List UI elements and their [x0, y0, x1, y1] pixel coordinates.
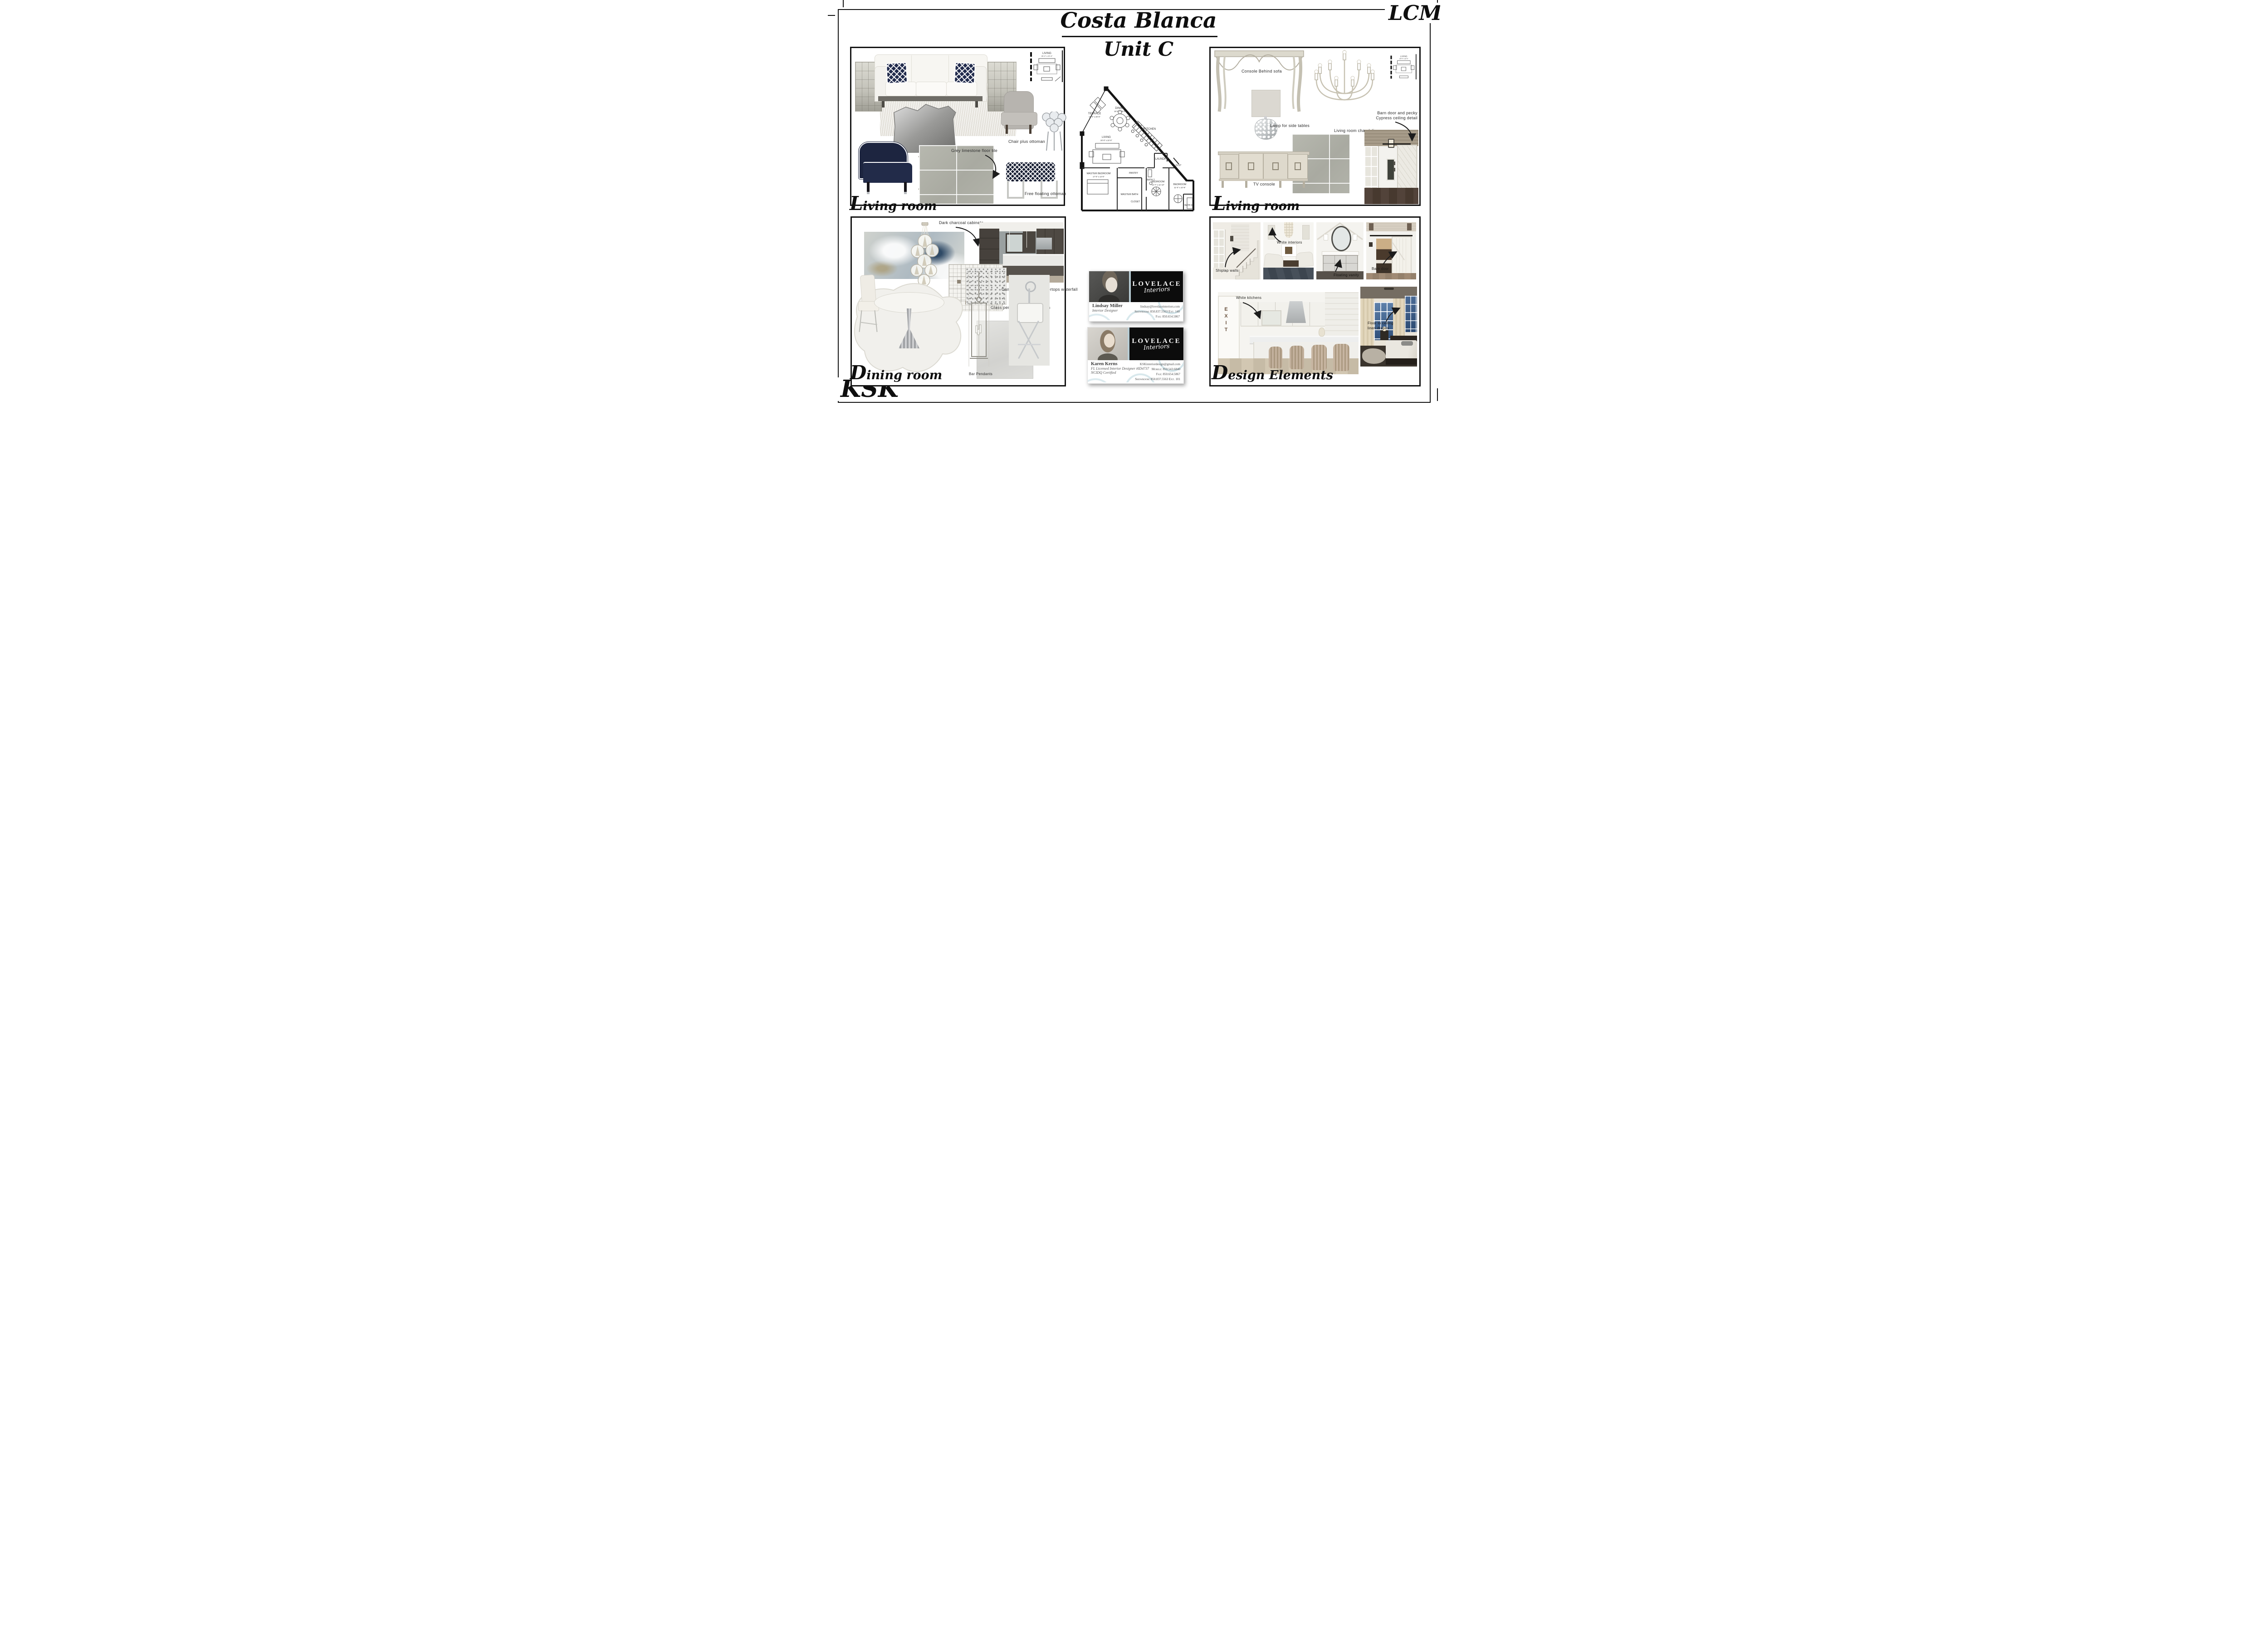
svg-text:BATH 3: BATH 3 [1184, 204, 1192, 207]
kitchen-island [1129, 121, 1163, 154]
barn-ceiling-label-1: Barn door and pecky [1367, 111, 1417, 116]
mobile-line: Mobile: 850.543.6840 [1135, 367, 1180, 372]
vanity-label: Floating vanity [1334, 273, 1359, 278]
living-room-panel-1: LIVING 20'-0" x 22'-0" Chair plus ottoma… [850, 47, 1065, 206]
ottoman-cushion [1006, 162, 1055, 181]
square-handle [1226, 162, 1232, 170]
cabinets-label: Dark charcoal cabinets [939, 220, 983, 225]
kitchens-label: White kitchens [1236, 296, 1261, 300]
card-contact: KSKinteriordesign@gmail.com Mobile: 850.… [1135, 362, 1180, 381]
console-leg [1279, 181, 1281, 188]
svg-text:20'-0" x 22'-0": 20'-0" x 22'-0" [1100, 139, 1112, 142]
square-handle [1295, 162, 1301, 170]
console-base [1219, 179, 1308, 181]
wall-art [1369, 242, 1373, 247]
mood-board-page: Costa Blanca Unit C LCM KSK [828, 0, 1440, 408]
email: KSKinteriordesign@gmail.com [1135, 362, 1180, 367]
exit-door [1218, 296, 1240, 366]
tall-window [1302, 225, 1310, 240]
footrest [1018, 344, 1041, 345]
armchair-leg [1006, 125, 1008, 134]
unit-c-floor-plan: TERRACE DINING LIVING KITCHEN LAUNDRY CL… [1078, 86, 1199, 214]
fax-line: Fax: 850.654.5867 [1134, 314, 1180, 319]
acrylic-stool-photo [1009, 275, 1050, 366]
lovelace-logo: LOVELACE Interiors [1129, 328, 1183, 360]
console-leg [1303, 181, 1305, 188]
square-handle [1248, 162, 1254, 170]
console-label: Console Behind sofa [1242, 69, 1282, 74]
navy-geometric-pillow [886, 62, 908, 84]
panel-title: Design Elements [1212, 363, 1333, 382]
barn-door-arrow [1382, 250, 1397, 266]
bolster-pillow [1401, 341, 1413, 346]
bed-frame [1386, 358, 1417, 365]
island-base [1003, 266, 1064, 276]
log-stool [1333, 344, 1349, 371]
sconce [1324, 234, 1328, 240]
svg-text:16'-0" x 18'-0": 16'-0" x 18'-0" [1114, 110, 1126, 112]
wood-floor [1366, 273, 1416, 279]
vanity-arrow [1334, 259, 1343, 273]
living-plan-thumbnail: LIVING 20'-0" x 22'-0" [1029, 49, 1064, 84]
svg-text:LAUNDRY: LAUNDRY [1155, 158, 1168, 161]
ottoman-frame-leg [1007, 181, 1024, 199]
email: lindsay@lovelaceinteriors.com [1134, 304, 1180, 309]
lamp-shade [1251, 90, 1281, 117]
ceiling-beam [1407, 223, 1412, 230]
svg-text:TERRACE: TERRACE [1088, 112, 1101, 115]
svg-text:KITCHEN: KITCHEN [1144, 128, 1156, 131]
pebble-martini-table [1040, 112, 1068, 152]
sofa-leg [882, 101, 885, 108]
crop-mark [1437, 388, 1438, 401]
linen-drapes-bedroom-photo: Floor to ceiling linen drapes [1360, 287, 1417, 367]
hide-rug [1362, 348, 1386, 364]
kitchens-arrow [1242, 301, 1261, 319]
crop-mark [828, 15, 835, 16]
svg-text:CLOSET: CLOSET [1131, 200, 1140, 203]
barn-ceiling-arrow [1394, 121, 1414, 142]
gray-armchair [1000, 91, 1044, 143]
coral-decor [1319, 328, 1325, 337]
sofa-leg [975, 101, 978, 108]
person-name: Lindsay Miller [1092, 303, 1123, 308]
ottoman-label: Free floating ottoman [1025, 191, 1066, 196]
lovelace-logo: LOVELACE Interiors [1131, 271, 1183, 302]
panel-title: Living room [1212, 194, 1300, 213]
dark-cabinet [1023, 231, 1036, 253]
portrait-photo [1088, 328, 1128, 360]
fax-line: Fax: 850.654.5867 [1135, 372, 1180, 377]
armchair-leg [1029, 125, 1031, 134]
floating-vanity-photo: Floating vanity [1316, 222, 1364, 279]
sliding-barn-door [1397, 145, 1417, 190]
design-elements-panel: Shiplap walls White interiors [1209, 216, 1421, 386]
console-leg [1222, 181, 1224, 188]
sofa-seam [911, 55, 912, 82]
chair-label: Chair plus ottoman [1008, 139, 1045, 144]
wood-coffee-table [1283, 260, 1299, 267]
pendants-label: Bar Pendants [969, 372, 992, 376]
armchair-seat [1001, 112, 1037, 126]
white-interiors-photo: White interiors [1263, 222, 1314, 279]
slate-floor [1263, 268, 1314, 279]
page-title: Costa Blanca [1057, 10, 1220, 31]
side-window [1405, 296, 1417, 332]
stool-ring [1025, 281, 1036, 292]
exit-sign: EXIT [1223, 307, 1229, 334]
business-card-karen: LOVELACE Interiors Karen Kerns FL Licens… [1087, 327, 1184, 384]
svg-text:14'-7" x 11'-10": 14'-7" x 11'-10" [1152, 184, 1164, 186]
capiz-chandelier [1284, 222, 1293, 238]
svg-text:12'-0" x 20'-0": 12'-0" x 20'-0" [1089, 116, 1100, 118]
monogram-lcm: LCM [1385, 3, 1440, 23]
sofa-seam [948, 55, 949, 82]
svg-text:11'-0" x 10'-9": 11'-0" x 10'-9" [1174, 186, 1186, 189]
pendant-cord [1009, 231, 1010, 250]
lamp-label: Lamp for side tables [1270, 123, 1310, 128]
shiplap-stair-photo: Shiplap walls [1213, 222, 1261, 279]
white-kitchen-photo: EXIT White kitchens [1218, 292, 1359, 374]
dining-room-panel: Dark charcoal cabinets Cambr [850, 216, 1066, 386]
drapes-label-2: linen drapes [1368, 326, 1389, 331]
card-top: LOVELACE Interiors [1089, 271, 1183, 302]
svg-text:LIVING: LIVING [1102, 136, 1111, 139]
card-top: LOVELACE Interiors [1088, 328, 1183, 360]
drapes-arrow [1385, 307, 1400, 323]
hall-windows [1364, 146, 1379, 190]
portrait-photo [1089, 271, 1129, 302]
fireplace-inset [1285, 247, 1292, 254]
glass-cabinet [1261, 310, 1281, 326]
living-room-panel-2: Console Behind sofa LIVING 20'-0" x 22'-… [1209, 47, 1421, 206]
svg-text:CLST: CLST [1176, 164, 1182, 167]
svg-text:20'-0" x 22'-0": 20'-0" x 22'-0" [1399, 58, 1408, 60]
living-plan-thumbnail: LIVING 20'-0" x 22'-0" [1389, 49, 1417, 85]
range-hood [1036, 238, 1052, 249]
mercury-glass-base [1255, 119, 1277, 140]
living-room-chandelier [1314, 50, 1375, 131]
svg-text:PANTRY: PANTRY [1129, 172, 1138, 175]
crop-mark [843, 0, 844, 7]
svg-text:20'-0" x 22'-0": 20'-0" x 22'-0" [1041, 55, 1053, 57]
barn-ceiling-label-2: Cypress ceiling detail [1367, 116, 1417, 121]
oval-mirror [1331, 226, 1351, 251]
kitchen-window [1006, 233, 1024, 253]
svg-text:MASTER BATH: MASTER BATH [1121, 193, 1139, 196]
ceiling-beam [1369, 223, 1374, 230]
card-contact: lindsay@lovelaceinteriors.com Showroom: … [1134, 304, 1180, 319]
svg-text:17'-0" x 14'-0": 17'-0" x 14'-0" [1093, 176, 1105, 178]
card-identity: Lindsay Miller Interior Designer [1092, 303, 1123, 313]
panel-title: Living room [850, 194, 937, 213]
showroom-line: Showroom: 850.837.5563 Ext. 101 [1135, 377, 1180, 382]
seat-cushion [916, 82, 947, 96]
round-dining-table [874, 292, 943, 350]
barn-door-label: Barn door [1372, 267, 1389, 271]
svg-text:BEDROOM: BEDROOM [1173, 183, 1187, 186]
bar-pendant-lantern [968, 271, 990, 370]
page-subtitle: Unit C [1057, 40, 1220, 59]
tile-arrow [983, 154, 999, 180]
showroom-line: Showroom: 850.837.5563 Ext. 140 [1134, 309, 1180, 314]
bed [1386, 336, 1417, 367]
wall-frame [1393, 161, 1395, 165]
stool-post [1028, 288, 1030, 304]
wall-frame [1393, 168, 1395, 171]
stool-legs [1015, 320, 1043, 359]
interiors-arrow [1271, 228, 1282, 243]
barn-door-photo: Barn door [1366, 222, 1416, 279]
pendant-cord [1026, 231, 1027, 248]
business-card-lindsay: LOVELACE Interiors Lindsay Miller Interi… [1089, 271, 1183, 322]
tv-console-label: TV console [1253, 182, 1275, 187]
chair-leg [859, 310, 862, 332]
island-marble [1003, 254, 1064, 267]
panel-title: Dining room [850, 363, 942, 382]
navy-velvet-chair [857, 142, 916, 196]
navy-chair-seat [863, 162, 912, 183]
console-leg [1245, 181, 1247, 188]
stair-sconce [1230, 236, 1233, 241]
dark-wood-floor [1364, 188, 1418, 204]
svg-text:BEDROOM: BEDROOM [1152, 181, 1165, 183]
fluted-pedestal [898, 308, 920, 348]
title-underline [1062, 36, 1217, 37]
tile-label: Grey limestone floor tile [951, 148, 997, 153]
sconce [1353, 234, 1357, 240]
svg-text:MASTER BEDROOM: MASTER BEDROOM [1087, 172, 1111, 175]
card-bottom: Lindsay Miller Interior Designer lindsay… [1089, 302, 1183, 320]
side-table-lamp [1247, 90, 1285, 141]
square-handle [1272, 162, 1279, 170]
cabinets-arrow [954, 226, 980, 247]
navy-geometric-pillow [954, 62, 976, 84]
person-role: Interior Designer [1092, 308, 1123, 313]
ceiling-fan [1384, 288, 1394, 290]
shiplap-arrow [1224, 249, 1241, 269]
shiplap-label: Shiplap walls [1216, 269, 1239, 273]
card-bottom: Karen Kerns FL Licensed Interior Designe… [1088, 360, 1183, 382]
svg-text:DINING: DINING [1115, 107, 1125, 110]
